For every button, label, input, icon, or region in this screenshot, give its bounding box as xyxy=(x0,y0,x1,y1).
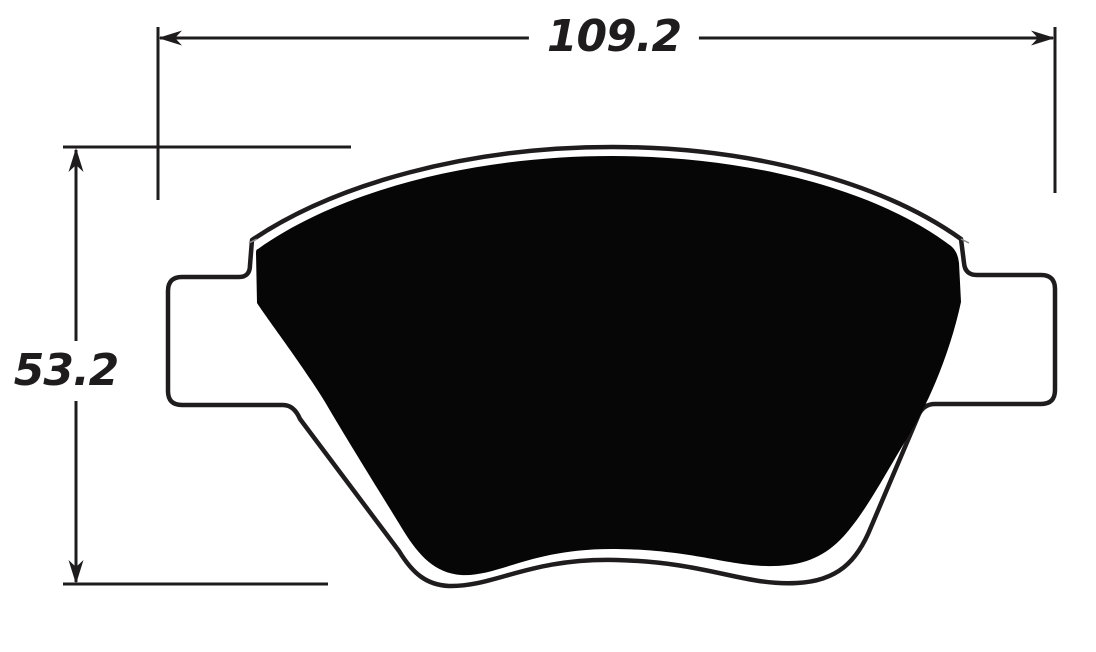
height-dimension-label: 53.2 xyxy=(6,341,127,401)
brake-pad-diagram xyxy=(0,0,1096,652)
pad-shape xyxy=(168,147,1055,586)
width-dimension-label: 109.2 xyxy=(529,13,699,61)
friction-pad-silhouette xyxy=(256,156,961,575)
drawing-canvas: 109.2 53.2 xyxy=(0,0,1096,652)
